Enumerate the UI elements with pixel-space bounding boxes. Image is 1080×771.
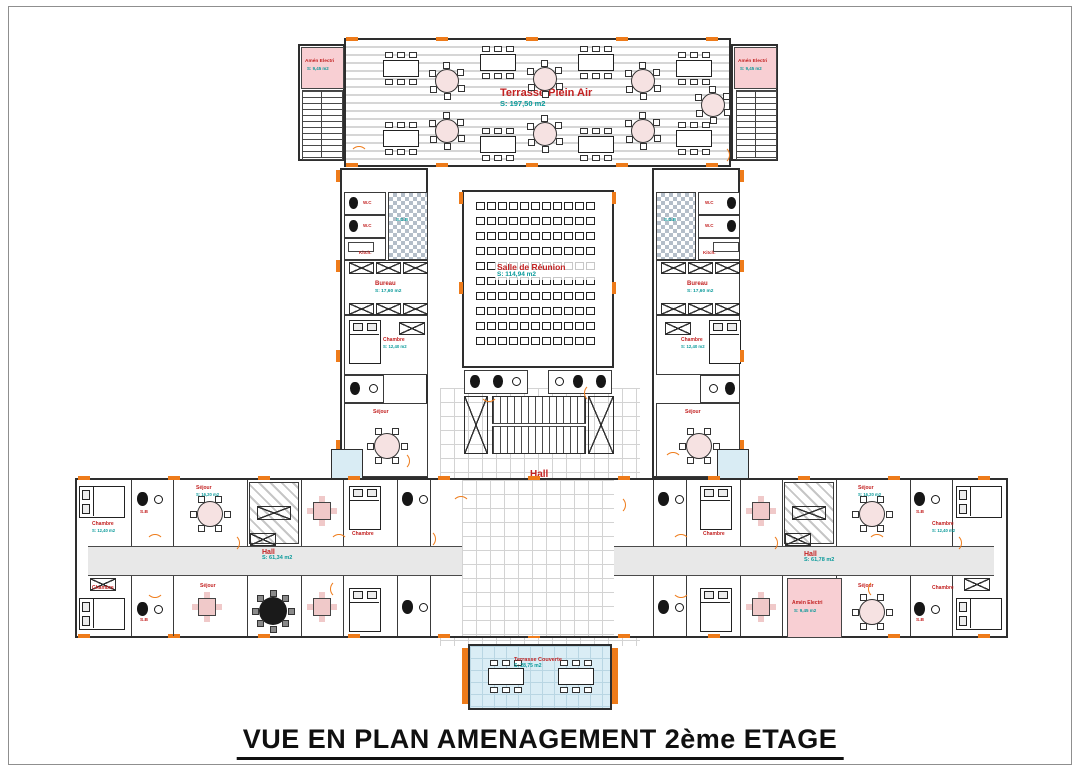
room-label: Amén Electri bbox=[738, 59, 767, 64]
door-arc-icon bbox=[868, 534, 886, 552]
wc-right bbox=[548, 370, 612, 394]
seat-icon bbox=[520, 307, 529, 315]
shape bbox=[457, 69, 464, 76]
seat-icon bbox=[564, 202, 573, 210]
seat-icon bbox=[509, 307, 518, 315]
bottom-room-area: S: 28,75 m2 bbox=[514, 664, 562, 669]
room-label: Bureau bbox=[375, 281, 396, 287]
partition-wall bbox=[653, 576, 654, 636]
elevator-left bbox=[464, 396, 488, 454]
chambre-room: ChambreS: 12,40 m2 bbox=[656, 315, 740, 375]
seat-icon bbox=[520, 232, 529, 240]
door-arc-icon bbox=[868, 580, 886, 598]
seat-icon bbox=[553, 292, 562, 300]
seat-icon bbox=[520, 292, 529, 300]
shape bbox=[506, 128, 514, 134]
bed-icon bbox=[349, 588, 381, 632]
table-round6-icon bbox=[624, 112, 662, 150]
seat-icon bbox=[553, 247, 562, 255]
shape bbox=[688, 262, 713, 274]
shape bbox=[528, 139, 535, 146]
shape bbox=[658, 492, 669, 506]
shape bbox=[541, 115, 548, 122]
shape bbox=[490, 660, 498, 666]
shape bbox=[385, 52, 393, 58]
shape bbox=[959, 490, 967, 500]
shape bbox=[350, 382, 360, 395]
shape bbox=[653, 69, 660, 76]
shape bbox=[690, 149, 698, 155]
seat-icon bbox=[564, 292, 573, 300]
bathroom-fixtures-icon bbox=[402, 492, 430, 508]
seat-icon bbox=[509, 202, 518, 210]
shape bbox=[877, 525, 884, 532]
hall-left-label-group: Hall S: 61,34 m2 bbox=[262, 549, 292, 562]
seat-icon bbox=[553, 217, 562, 225]
shape bbox=[403, 303, 428, 315]
dining-table-round-icon bbox=[679, 426, 719, 466]
bed-icon bbox=[700, 486, 732, 530]
shape bbox=[701, 602, 730, 603]
shape bbox=[383, 60, 419, 77]
shape bbox=[580, 73, 588, 79]
seat-icon bbox=[531, 337, 540, 345]
sdb-room bbox=[388, 192, 428, 260]
shape bbox=[675, 603, 684, 612]
dining-table-round-icon bbox=[852, 494, 892, 534]
shape bbox=[676, 60, 712, 77]
seat-icon bbox=[487, 232, 496, 240]
door-arc-icon bbox=[608, 496, 626, 514]
shape bbox=[375, 428, 382, 435]
shape bbox=[604, 46, 612, 52]
partition-wall bbox=[430, 576, 431, 636]
shape bbox=[385, 122, 393, 128]
dining-table-square-icon bbox=[752, 598, 770, 616]
table-rect6-icon bbox=[383, 122, 419, 155]
bed-icon bbox=[956, 486, 1002, 518]
seat-icon bbox=[498, 247, 507, 255]
seat-icon bbox=[498, 232, 507, 240]
shape bbox=[480, 54, 516, 71]
shape bbox=[914, 602, 925, 616]
shape bbox=[528, 84, 535, 91]
shape bbox=[959, 602, 967, 612]
dining-table-square-icon bbox=[313, 598, 331, 616]
seat-icon bbox=[575, 307, 584, 315]
table-round6-icon bbox=[624, 62, 662, 100]
shape bbox=[970, 599, 971, 628]
shape bbox=[592, 46, 600, 52]
shape bbox=[349, 303, 374, 315]
shape bbox=[82, 616, 90, 626]
partition-wall bbox=[653, 480, 654, 546]
room-label: Séjour bbox=[196, 486, 212, 491]
shape bbox=[367, 323, 377, 331]
room-area: S: 9,45 m2 bbox=[740, 67, 762, 72]
bureau-room: BureauS: 17,60 m2 bbox=[656, 260, 740, 315]
shape bbox=[527, 68, 534, 75]
seat-icon bbox=[542, 232, 551, 240]
shape bbox=[852, 511, 859, 518]
shape bbox=[270, 590, 277, 597]
shape bbox=[444, 93, 451, 100]
shape bbox=[197, 501, 223, 527]
shape bbox=[429, 120, 436, 127]
shape bbox=[860, 525, 867, 532]
shape bbox=[490, 687, 498, 693]
shape bbox=[506, 46, 514, 52]
shape bbox=[859, 501, 885, 527]
shape bbox=[604, 155, 612, 161]
shape bbox=[224, 511, 231, 518]
seat-icon bbox=[498, 322, 507, 330]
shape bbox=[713, 242, 739, 252]
room-label: W.C bbox=[705, 224, 714, 229]
shape bbox=[93, 487, 94, 516]
seat-icon bbox=[575, 217, 584, 225]
shape bbox=[409, 79, 417, 85]
shape bbox=[959, 616, 967, 626]
room-label: W.C bbox=[363, 224, 372, 229]
room-label: Séjour bbox=[685, 410, 701, 415]
seat-icon bbox=[487, 322, 496, 330]
seat-icon bbox=[487, 292, 496, 300]
seat-icon bbox=[586, 217, 595, 225]
partition-wall bbox=[131, 576, 132, 636]
shape bbox=[690, 79, 698, 85]
seat-icon bbox=[553, 337, 562, 345]
balcony-right bbox=[717, 449, 749, 479]
shape bbox=[494, 73, 502, 79]
wc-room bbox=[700, 375, 740, 403]
shape bbox=[701, 500, 730, 501]
room-label: W.C bbox=[705, 201, 714, 206]
room-label: Séjour bbox=[373, 410, 389, 415]
shape bbox=[654, 85, 661, 92]
wing-left: S.D.BW.CW.CKitch.BureauS: 17,60 m2Chambr… bbox=[340, 168, 428, 478]
room-label: Bureau bbox=[687, 281, 708, 287]
shape bbox=[584, 660, 592, 666]
shape bbox=[970, 487, 971, 516]
shape bbox=[252, 608, 259, 615]
shape bbox=[502, 660, 510, 666]
shape bbox=[430, 86, 437, 93]
seat-icon bbox=[509, 217, 518, 225]
seat-icon bbox=[476, 262, 485, 270]
shape bbox=[533, 67, 557, 91]
shape bbox=[353, 591, 363, 599]
shape bbox=[724, 109, 731, 116]
partition-wall bbox=[782, 576, 783, 636]
seat-icon bbox=[509, 337, 518, 345]
seat-icon bbox=[498, 202, 507, 210]
door-arc-icon bbox=[760, 534, 778, 552]
room-label: Chambre bbox=[92, 522, 114, 527]
shape bbox=[852, 609, 859, 616]
shape bbox=[592, 128, 600, 134]
shape bbox=[458, 85, 465, 92]
shape bbox=[376, 262, 401, 274]
room-area: S: 9,45 m2 bbox=[794, 609, 816, 614]
shape bbox=[401, 443, 408, 450]
bathroom-fixtures-icon bbox=[658, 600, 686, 616]
seat-icon bbox=[564, 217, 573, 225]
shape bbox=[482, 155, 490, 161]
partition-wall bbox=[836, 480, 837, 546]
table-rect6-icon bbox=[480, 46, 516, 79]
seat-icon bbox=[476, 292, 485, 300]
shape bbox=[367, 443, 374, 450]
shape bbox=[704, 457, 711, 464]
terrace-columns-bottom bbox=[346, 163, 729, 167]
shape bbox=[435, 119, 459, 143]
room-label: S.B bbox=[916, 510, 924, 515]
shape bbox=[931, 605, 940, 614]
seat-icon bbox=[586, 292, 595, 300]
shape bbox=[457, 119, 464, 126]
shape bbox=[727, 220, 736, 232]
stair-top-left bbox=[302, 90, 343, 160]
electrical-room-top-right: Amén Electri S: 9,45 m2 bbox=[734, 47, 777, 89]
seat-icon bbox=[520, 322, 529, 330]
partition-wall bbox=[910, 480, 911, 546]
meeting-columns-left bbox=[459, 192, 463, 366]
meeting-label-group: Salle de Réunion S: 114,94 m2 bbox=[495, 262, 609, 280]
seat-icon bbox=[542, 322, 551, 330]
seat-icon bbox=[542, 247, 551, 255]
room-label: Séjour bbox=[858, 486, 874, 491]
seat-icon bbox=[575, 202, 584, 210]
wardrobe-icon bbox=[250, 533, 276, 546]
shape bbox=[877, 623, 884, 630]
shape bbox=[555, 67, 562, 74]
partition-wall bbox=[173, 576, 174, 636]
shape bbox=[625, 70, 632, 77]
door-arc-icon bbox=[480, 384, 498, 402]
table-rect6-icon bbox=[676, 122, 712, 155]
shape bbox=[397, 122, 405, 128]
room-label: Chambre bbox=[92, 586, 114, 591]
seat-icon bbox=[553, 232, 562, 240]
shape bbox=[350, 334, 379, 335]
table-rect6-icon bbox=[383, 52, 419, 85]
shape bbox=[886, 609, 893, 616]
shape bbox=[860, 594, 867, 601]
partition-wall bbox=[301, 576, 302, 636]
shape bbox=[429, 70, 436, 77]
shape bbox=[506, 155, 514, 161]
shape bbox=[514, 687, 522, 693]
wing-right-columns bbox=[740, 170, 744, 476]
stair-rail bbox=[321, 90, 322, 158]
room-label: S.B bbox=[916, 618, 924, 623]
shape bbox=[282, 620, 289, 627]
shape bbox=[82, 602, 90, 612]
shape bbox=[397, 79, 405, 85]
shape bbox=[502, 687, 510, 693]
shape bbox=[704, 591, 714, 599]
seat-icon bbox=[487, 217, 496, 225]
shape bbox=[687, 428, 694, 435]
room-label: S.D.B bbox=[396, 218, 408, 223]
partition-wall bbox=[247, 480, 248, 546]
dining-table-square-icon bbox=[752, 502, 770, 520]
wardrobe-icon bbox=[785, 533, 811, 546]
room-label: Chambre bbox=[352, 532, 374, 537]
shape bbox=[710, 117, 717, 124]
seat-icon bbox=[520, 337, 529, 345]
wing-right: S.D.BW.CW.CKitch.BureauS: 17,60 m2Chambr… bbox=[652, 168, 740, 478]
bottom-room-label-group: Terrasse Couverte S: 28,75 m2 bbox=[514, 658, 562, 669]
shape bbox=[718, 489, 728, 497]
shape bbox=[701, 93, 725, 117]
shape bbox=[725, 382, 735, 395]
shape bbox=[494, 46, 502, 52]
bed-icon bbox=[700, 588, 732, 632]
door-arc-icon bbox=[330, 534, 348, 552]
shape bbox=[270, 626, 277, 633]
room-label: S: 16,20 m2 bbox=[196, 493, 219, 497]
bed-icon bbox=[956, 598, 1002, 630]
partition-wall bbox=[782, 480, 783, 546]
shape bbox=[665, 322, 691, 335]
door-arc-icon bbox=[330, 580, 348, 598]
table-round6-icon bbox=[526, 115, 564, 153]
room-label: Chambre bbox=[932, 586, 954, 591]
shape bbox=[369, 384, 378, 393]
wardrobe-icon bbox=[964, 578, 990, 591]
room-label: Kitch. bbox=[703, 251, 716, 256]
shape bbox=[639, 62, 646, 69]
door-arc-icon bbox=[672, 534, 690, 552]
shape bbox=[661, 303, 686, 315]
shape bbox=[397, 52, 405, 58]
door-arc-icon bbox=[222, 534, 240, 552]
door-arc-icon bbox=[146, 534, 164, 552]
seat-icon bbox=[575, 292, 584, 300]
shape bbox=[399, 322, 425, 335]
shape bbox=[443, 112, 450, 119]
door-arc-icon bbox=[944, 534, 962, 552]
seat-icon bbox=[487, 247, 496, 255]
seat-icon bbox=[542, 337, 551, 345]
seat-icon bbox=[476, 232, 485, 240]
room-label: S: 16,20 m2 bbox=[858, 493, 881, 497]
shape bbox=[626, 86, 633, 93]
seat-icon bbox=[531, 202, 540, 210]
partition-wall bbox=[131, 480, 132, 546]
shape bbox=[482, 73, 490, 79]
chambre-room: ChambreS: 12,40 m2 bbox=[344, 315, 428, 375]
door-arc-icon bbox=[452, 496, 470, 514]
shape bbox=[704, 489, 714, 497]
shape bbox=[686, 433, 712, 459]
shape bbox=[715, 262, 740, 274]
seat-icon bbox=[509, 247, 518, 255]
shape bbox=[702, 52, 710, 58]
shape bbox=[349, 220, 358, 232]
table-round6-icon bbox=[428, 112, 466, 150]
shape bbox=[397, 149, 405, 155]
room-label: S: 12,40 m2 bbox=[681, 345, 705, 350]
shape bbox=[494, 128, 502, 134]
seat-icon bbox=[498, 307, 507, 315]
shape bbox=[288, 608, 295, 615]
shape bbox=[198, 525, 205, 532]
table-round-dark-icon bbox=[252, 590, 294, 632]
shape bbox=[482, 128, 490, 134]
seat-icon bbox=[586, 307, 595, 315]
seat-icon bbox=[476, 337, 485, 345]
table-rect6-icon bbox=[578, 46, 614, 79]
shape bbox=[542, 91, 549, 98]
door-arc-icon bbox=[584, 384, 602, 402]
seat-icon bbox=[575, 322, 584, 330]
bathroom-fixtures-icon bbox=[658, 492, 686, 508]
seat-icon bbox=[498, 292, 507, 300]
shape bbox=[494, 155, 502, 161]
shape bbox=[690, 52, 698, 58]
shape bbox=[572, 660, 580, 666]
shape bbox=[349, 197, 358, 209]
seat-icon bbox=[520, 247, 529, 255]
shape bbox=[631, 119, 655, 143]
table-rect6-icon bbox=[558, 660, 594, 693]
shape bbox=[82, 490, 90, 500]
shape bbox=[640, 143, 647, 150]
room-label: S.B bbox=[140, 510, 148, 515]
room-label: Chambre bbox=[383, 338, 405, 343]
seat-icon bbox=[531, 322, 540, 330]
seat-icon bbox=[564, 232, 573, 240]
shape bbox=[375, 457, 382, 464]
partition-wall bbox=[247, 576, 248, 636]
shape bbox=[678, 79, 686, 85]
room-area: S: 9,45 m2 bbox=[307, 67, 329, 72]
shape bbox=[555, 122, 562, 129]
shape bbox=[688, 303, 713, 315]
shape bbox=[257, 620, 264, 627]
partition-wall bbox=[397, 576, 398, 636]
seat-icon bbox=[487, 307, 496, 315]
table-rect6-icon bbox=[676, 52, 712, 85]
room-label: S: 12,40 m2 bbox=[932, 529, 955, 533]
shape bbox=[709, 86, 716, 93]
door-arc-icon bbox=[672, 580, 690, 598]
seat-icon bbox=[476, 202, 485, 210]
wc-room: W.C bbox=[344, 192, 386, 215]
electrical-room-top-left: Amén Electri S: 9,45 m2 bbox=[301, 47, 344, 89]
shape bbox=[402, 600, 413, 614]
shape bbox=[367, 591, 377, 599]
shape bbox=[353, 323, 363, 331]
shape bbox=[625, 120, 632, 127]
bed-icon bbox=[709, 320, 741, 364]
terrace-columns-top bbox=[346, 37, 729, 41]
seat-icon bbox=[553, 307, 562, 315]
shape bbox=[385, 149, 393, 155]
shape bbox=[678, 122, 686, 128]
hall-right-label-group: Hall S: 61,78 m2 bbox=[804, 551, 834, 564]
seat-icon bbox=[531, 247, 540, 255]
shape bbox=[704, 428, 711, 435]
shape bbox=[640, 93, 647, 100]
shape bbox=[687, 457, 694, 464]
page-title: VUE EN PLAN AMENAGEMENT 2ème ETAGE bbox=[237, 724, 844, 760]
seat-icon bbox=[542, 292, 551, 300]
shape bbox=[392, 428, 399, 435]
